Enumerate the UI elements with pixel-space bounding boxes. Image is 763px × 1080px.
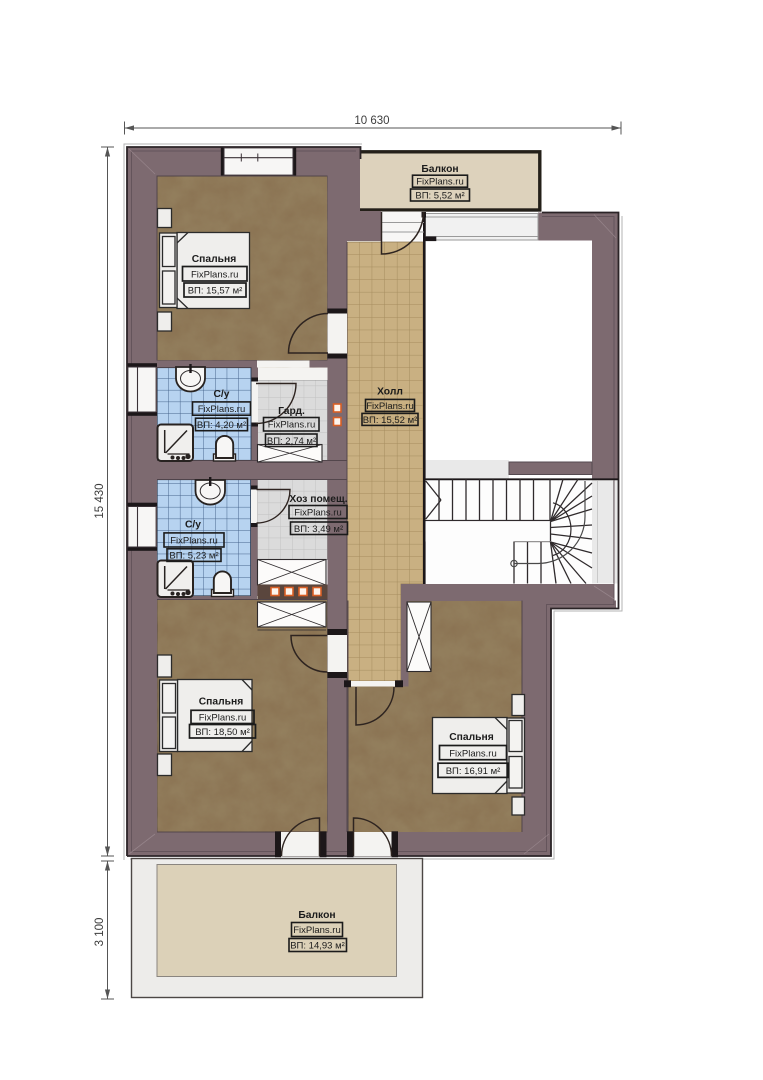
svg-text:Спальня: Спальня: [199, 697, 243, 708]
svg-text:FixPlans.ru: FixPlans.ru: [293, 925, 341, 936]
svg-text:ВП: 3,49 м²: ВП: 3,49 м²: [294, 524, 343, 535]
svg-text:ВП: 15,57 м²: ВП: 15,57 м²: [188, 286, 243, 297]
svg-text:Спальня: Спальня: [192, 254, 236, 265]
svg-text:FixPlans.ru: FixPlans.ru: [199, 713, 247, 724]
svg-text:Балкон: Балкон: [298, 910, 335, 921]
svg-text:FixPlans.ru: FixPlans.ru: [294, 508, 342, 519]
svg-text:С/у: С/у: [185, 520, 201, 531]
svg-text:FixPlans.ru: FixPlans.ru: [366, 401, 414, 412]
svg-text:ВП: 4,20 м²: ВП: 4,20 м²: [197, 420, 246, 431]
svg-text:С/у: С/у: [213, 389, 229, 400]
svg-text:Спальня: Спальня: [449, 732, 493, 743]
svg-text:Балкон: Балкон: [421, 164, 458, 175]
svg-text:ВП: 14,93 м²: ВП: 14,93 м²: [290, 941, 345, 952]
svg-text:FixPlans.ru: FixPlans.ru: [198, 404, 246, 415]
svg-text:3 100: 3 100: [94, 918, 106, 947]
svg-text:10 630: 10 630: [354, 115, 389, 127]
svg-text:FixPlans.ru: FixPlans.ru: [268, 420, 316, 431]
svg-text:ВП: 18,50 м²: ВП: 18,50 м²: [195, 727, 250, 738]
svg-text:Хоз помещ.: Хоз помещ.: [289, 494, 347, 505]
svg-text:ВП: 5,52 м²: ВП: 5,52 м²: [415, 190, 464, 201]
svg-text:Холл: Холл: [377, 387, 403, 398]
svg-text:ВП: 2,74 м²: ВП: 2,74 м²: [267, 436, 316, 447]
svg-text:FixPlans.ru: FixPlans.ru: [449, 748, 497, 759]
svg-text:ВП: 15,52 м²: ВП: 15,52 м²: [363, 415, 418, 426]
svg-text:FixPlans.ru: FixPlans.ru: [170, 536, 218, 547]
svg-text:ВП: 16,91 м²: ВП: 16,91 м²: [446, 766, 501, 777]
svg-text:FixPlans.ru: FixPlans.ru: [416, 177, 464, 188]
svg-text:ВП: 5,23 м²: ВП: 5,23 м²: [169, 551, 218, 562]
svg-text:Гард.: Гард.: [278, 406, 305, 417]
svg-text:FixPlans.ru: FixPlans.ru: [191, 270, 239, 281]
svg-text:15 430: 15 430: [94, 483, 106, 518]
